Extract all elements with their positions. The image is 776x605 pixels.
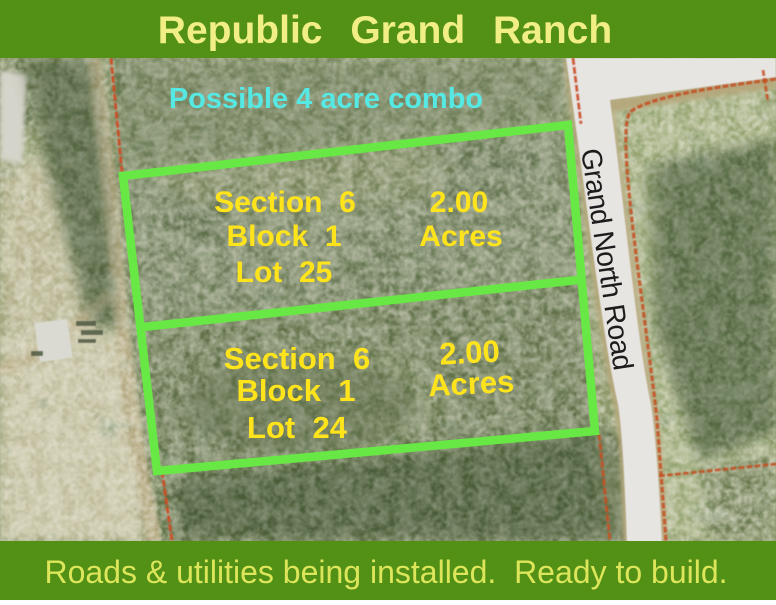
svg-text:Lot 24: Lot 24	[247, 410, 348, 445]
svg-text:Block 1: Block 1	[237, 373, 356, 408]
svg-text:Section 6: Section 6	[214, 186, 356, 219]
svg-text:2.00: 2.00	[430, 186, 488, 219]
svg-text:Acres: Acres	[419, 220, 502, 253]
svg-text:Lot 25: Lot 25	[236, 256, 333, 289]
svg-text:Roads & utilities being instal: Roads & utilities being installed. Ready…	[44, 554, 727, 590]
svg-text:Possible 4 acre combo: Possible 4 acre combo	[169, 83, 483, 115]
svg-text:Republic Grand Ranch: Republic Grand Ranch	[158, 9, 612, 52]
svg-text:Acres: Acres	[427, 364, 515, 403]
svg-text:Block 1: Block 1	[226, 220, 341, 253]
svg-text:Section 6: Section 6	[224, 341, 370, 376]
